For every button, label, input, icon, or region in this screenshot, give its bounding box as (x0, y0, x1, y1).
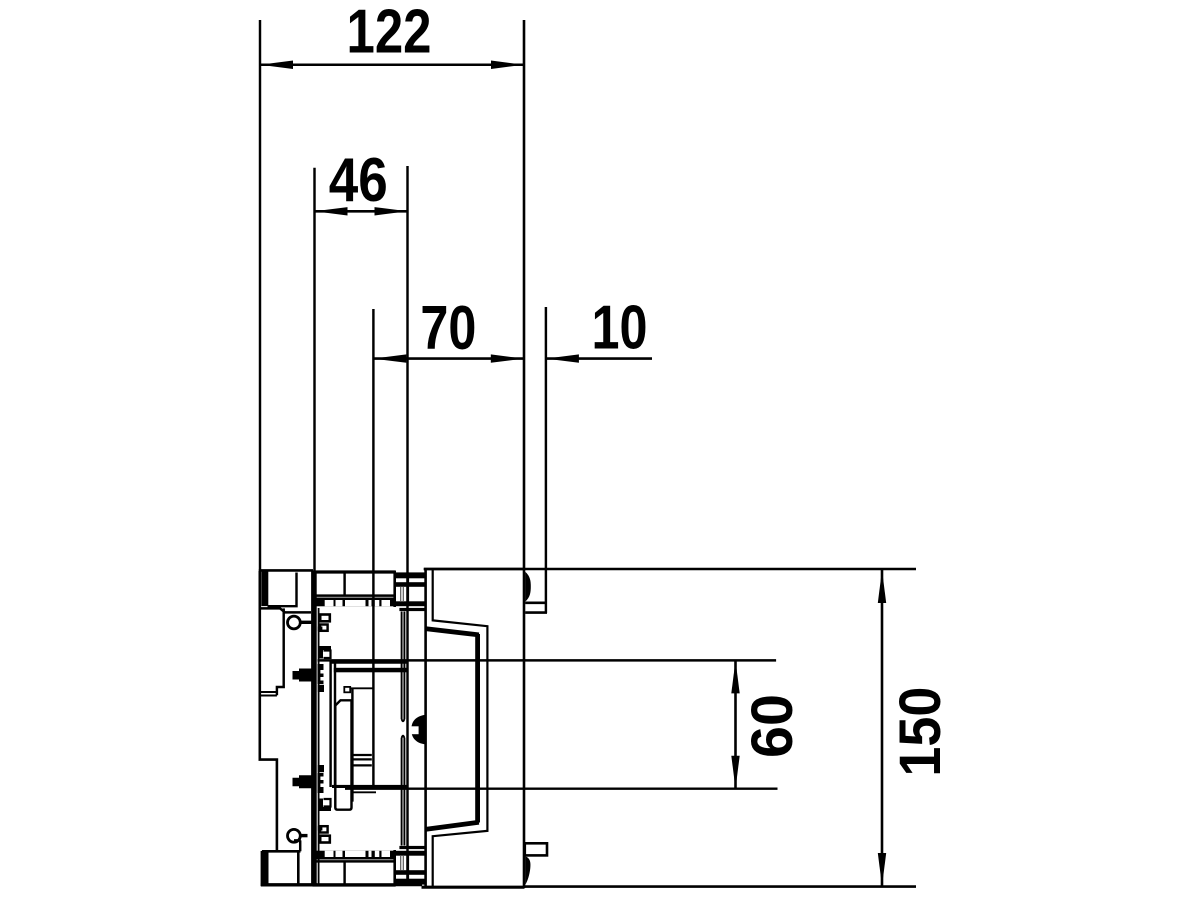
svg-text:70: 70 (420, 294, 476, 363)
svg-text:46: 46 (329, 146, 388, 215)
svg-text:150: 150 (888, 687, 953, 777)
svg-text:10: 10 (592, 294, 648, 363)
svg-text:60: 60 (740, 694, 805, 758)
svg-text:122: 122 (347, 0, 432, 67)
